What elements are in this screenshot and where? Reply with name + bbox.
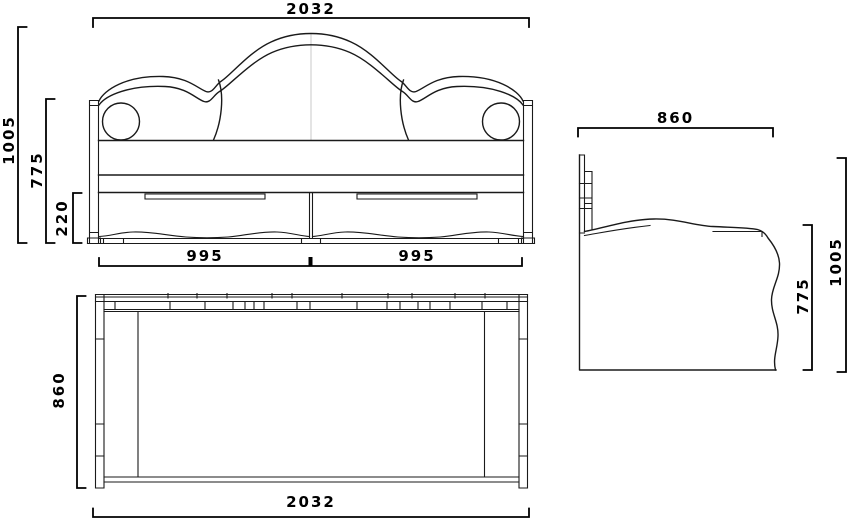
dim-label-side-overall-height: 1005 <box>827 237 845 287</box>
technical-drawing-page: 2032 1005 775 220 995 995 860 2032 <box>0 0 850 522</box>
dim-label-front-overall-height: 1005 <box>0 115 18 165</box>
dim-label-front-overall-width: 2032 <box>286 0 336 18</box>
dim-label-plan-depth: 860 <box>50 371 68 408</box>
dim-label-front-back-height: 775 <box>28 151 46 188</box>
dim-label-side-depth: 860 <box>657 109 694 127</box>
dim-label-plan-overall-width: 2032 <box>286 493 336 511</box>
technical-drawing-canvas: 2032 1005 775 220 995 995 860 2032 <box>0 0 850 522</box>
dim-label-front-drawer-height: 220 <box>53 199 71 236</box>
dim-label-side-back-height: 775 <box>794 277 812 314</box>
dim-label-front-drawer-left: 995 <box>186 247 223 265</box>
dim-label-front-drawer-right: 995 <box>398 247 435 265</box>
